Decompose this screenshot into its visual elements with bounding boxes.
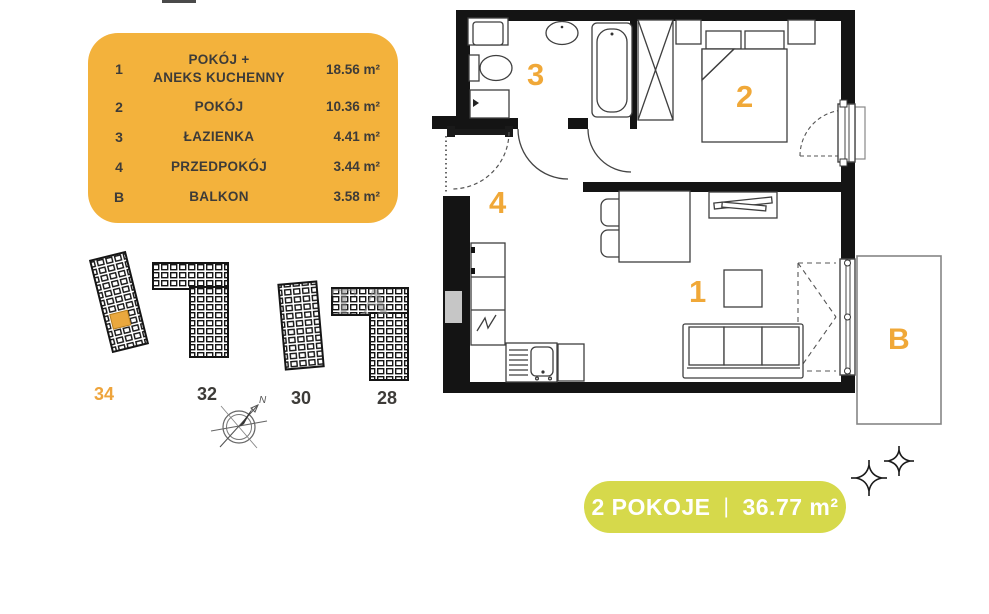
kitchen-sink-icon [506, 343, 557, 382]
legend-row: 1 POKÓJ + ANEKS KUCHENNY 18.56 m² [104, 48, 380, 90]
legend-card: 1 POKÓJ + ANEKS KUCHENNY 18.56 m² 2 POKÓ… [88, 33, 398, 223]
room-name: BALKON [134, 188, 304, 206]
room-area: 3.44 m² [304, 159, 380, 174]
north-label: N [259, 395, 267, 406]
room-area: 3.58 m² [304, 189, 380, 204]
building-30[interactable] [278, 282, 323, 370]
rooms-count-label: 2 POKOJE [591, 494, 710, 521]
room-label-living: 1 [689, 274, 706, 309]
coffee-table-icon [724, 270, 762, 307]
nightstand-icon [788, 20, 815, 44]
pill-separator: | [724, 495, 730, 519]
bedroom-door-arc [588, 129, 631, 172]
toilet-icon [469, 55, 512, 81]
room-label-bedroom: 2 [736, 79, 753, 114]
wall-window [445, 291, 462, 323]
room-label-bathroom: 3 [527, 57, 544, 92]
bedroom-window [800, 100, 865, 166]
washing-machine-icon [468, 18, 508, 45]
room-number: B [104, 189, 134, 205]
room-name: POKÓJ + ANEKS KUCHENNY [134, 51, 304, 86]
entry-door [446, 126, 513, 192]
room-area: 18.56 m² [304, 62, 380, 77]
building-label-34[interactable]: 34 [84, 384, 124, 405]
bathroom-cabinet-icon [470, 90, 509, 118]
kitchen-counter-icon [558, 344, 584, 381]
watermark: TA [331, 280, 397, 324]
floorplan: 3 2 4 1 B [428, 0, 945, 440]
tv-cabinet-icon [709, 192, 777, 218]
dining-set-icon [601, 191, 690, 262]
legend-row: 2 POKÓJ 10.36 m² [104, 93, 380, 120]
room-label-hall: 4 [489, 185, 507, 220]
compass-icon: N [208, 393, 272, 453]
page: 1 POKÓJ + ANEKS KUCHENNY 18.56 m² 2 POKÓ… [0, 0, 989, 614]
building-34[interactable] [90, 252, 148, 352]
balcony-door [798, 259, 855, 375]
total-area-label: 36.77 m² [742, 494, 838, 521]
room-name: PRZEDPOKÓJ [134, 158, 304, 176]
room-number: 2 [104, 99, 134, 115]
summary-pill: 2 POKOJE | 36.77 m² [584, 481, 846, 533]
building-label-28[interactable]: 28 [367, 388, 407, 409]
building-label-30[interactable]: 30 [281, 388, 321, 409]
sparkles-icon [845, 446, 923, 498]
crop-mark [162, 0, 196, 3]
legend-row: 3 ŁAZIENKA 4.41 m² [104, 123, 380, 150]
room-label-balcony: B [888, 323, 910, 356]
bathtub-icon [592, 23, 632, 117]
room-area: 4.41 m² [304, 129, 380, 144]
room-name: ŁAZIENKA [134, 128, 304, 146]
sink-icon [546, 22, 578, 45]
nightstand-icon [676, 20, 701, 44]
kitchen-cabinets-icon [471, 243, 505, 345]
legend-row: B BALKON 3.58 m² [104, 183, 380, 210]
room-number: 4 [104, 159, 134, 175]
wardrobe-icon [638, 20, 673, 120]
building-32[interactable] [153, 263, 228, 357]
legend-row: 4 PRZEDPOKÓJ 3.44 m² [104, 153, 380, 180]
room-number: 3 [104, 129, 134, 145]
bathroom-door-arc [518, 129, 568, 179]
room-name: POKÓJ [134, 98, 304, 116]
sofa-icon [683, 324, 803, 378]
room-number: 1 [104, 61, 134, 77]
room-area: 10.36 m² [304, 99, 380, 114]
